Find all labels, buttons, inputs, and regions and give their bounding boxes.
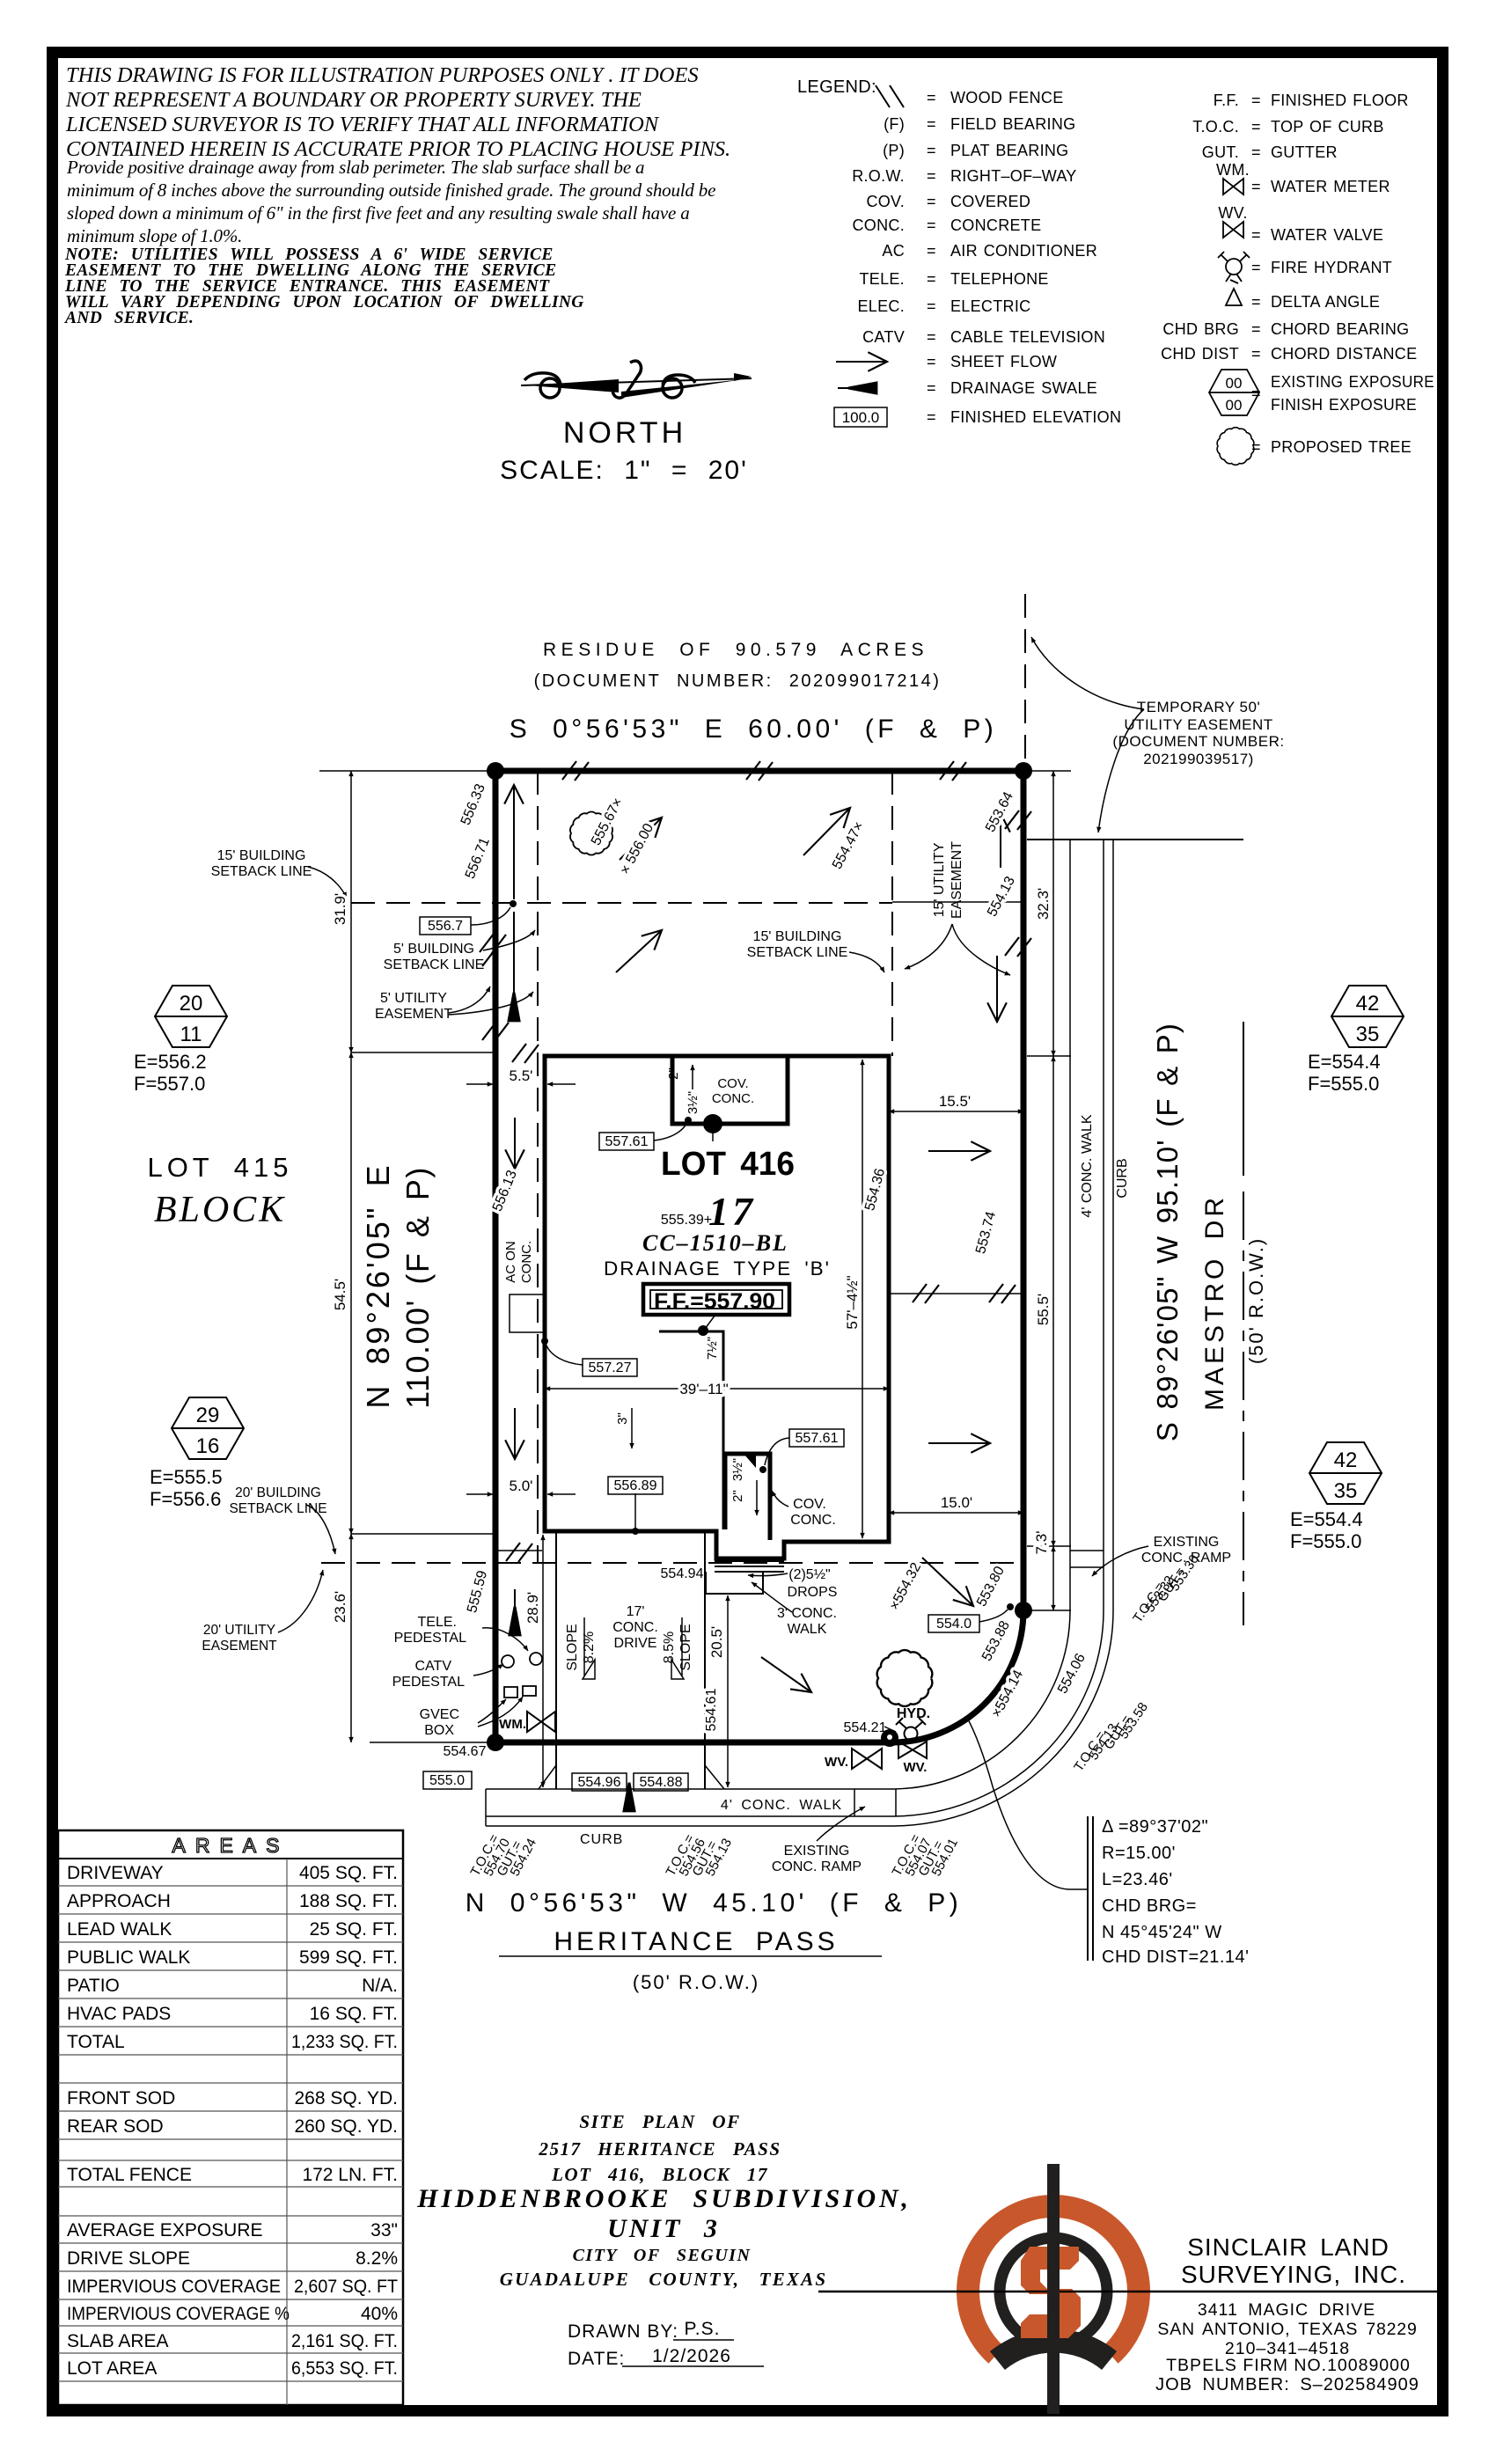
svg-text:SETBACK LINE: SETBACK LINE xyxy=(211,864,312,879)
svg-text:CATV: CATV xyxy=(862,328,905,346)
svg-text:SETBACK LINE: SETBACK LINE xyxy=(384,957,485,972)
svg-text:LOT AREA: LOT AREA xyxy=(67,2358,157,2379)
svg-text:20: 20 xyxy=(180,992,203,1016)
svg-text:× 556.00: × 556.00 xyxy=(618,821,657,876)
svg-text:42: 42 xyxy=(1356,992,1380,1016)
svg-text:S 89°26'05" W 95.10' (F & P): S 89°26'05" W 95.10' (F & P) xyxy=(1151,1023,1184,1441)
svg-text:CURB: CURB xyxy=(1115,1158,1130,1198)
svg-text:LEAD WALK: LEAD WALK xyxy=(67,1919,172,1940)
svg-text:APPROACH: APPROACH xyxy=(67,1891,171,1911)
svg-text:=: = xyxy=(1251,259,1261,276)
svg-text:E=554.4: E=554.4 xyxy=(1290,1508,1363,1530)
svg-text:554.88: 554.88 xyxy=(640,1775,683,1790)
svg-text:CONC.: CONC. xyxy=(853,216,906,234)
svg-text:AC ON: AC ON xyxy=(503,1241,518,1283)
svg-text:20' UTILITY: 20' UTILITY xyxy=(203,1623,275,1638)
svg-text:35: 35 xyxy=(1356,1023,1380,1046)
svg-text:15' BUILDING: 15' BUILDING xyxy=(217,848,306,863)
svg-text:554.21: 554.21 xyxy=(844,1720,887,1735)
svg-text:UNIT 3: UNIT 3 xyxy=(607,2214,720,2243)
svg-text:(50' R.O.W.): (50' R.O.W.) xyxy=(1245,1237,1267,1364)
svg-text:AND SERVICE.: AND SERVICE. xyxy=(63,309,194,327)
svg-text:=: = xyxy=(1251,320,1261,338)
svg-text:F=555.0: F=555.0 xyxy=(1290,1530,1361,1552)
svg-text:FINISHED ELEVATION: FINISHED ELEVATION xyxy=(950,408,1121,426)
svg-text:GUTTER: GUTTER xyxy=(1271,143,1338,161)
svg-text:554.67: 554.67 xyxy=(444,1744,487,1759)
svg-text:=: = xyxy=(927,379,936,397)
svg-text:CONC. RAMP: CONC. RAMP xyxy=(772,1859,862,1874)
svg-text:HYD.: HYD. xyxy=(897,1706,930,1721)
svg-text:RESIDUE OF 90.579 ACRES: RESIDUE OF 90.579 ACRES xyxy=(543,640,928,660)
svg-text:555.59: 555.59 xyxy=(465,1569,490,1615)
svg-text:3' CONC.: 3' CONC. xyxy=(777,1606,837,1621)
svg-text:CC–1510–BL: CC–1510–BL xyxy=(642,1230,788,1256)
svg-text:N/A.: N/A. xyxy=(362,1976,398,1996)
svg-text:29: 29 xyxy=(196,1404,220,1427)
svg-text:=: = xyxy=(1251,345,1261,363)
svg-text:AREAS: AREAS xyxy=(172,1834,290,1857)
svg-text:=: = xyxy=(1251,178,1261,195)
svg-text:Provide positive drainage away: Provide positive drainage away from slab… xyxy=(66,157,644,178)
svg-text:NOT REPRESENT A BOUNDARY OR PR: NOT REPRESENT A BOUNDARY OR PROPERTY SUR… xyxy=(65,88,642,112)
svg-text:55.5': 55.5' xyxy=(1035,1294,1052,1325)
svg-text:554.06: 554.06 xyxy=(1055,1651,1089,1696)
svg-text:553.88: 553.88 xyxy=(979,1618,1013,1663)
svg-text:HIDDENBROOKE SUBDIVISION,: HIDDENBROOKE SUBDIVISION, xyxy=(416,2184,911,2213)
svg-text:SCALE: 1" = 20': SCALE: 1" = 20' xyxy=(500,456,748,485)
svg-text:minimum slope of 1.0%.: minimum slope of 1.0%. xyxy=(67,225,242,246)
svg-text:15' BUILDING: 15' BUILDING xyxy=(753,929,842,944)
svg-text:SAN ANTONIO, TEXAS 78229: SAN ANTONIO, TEXAS 78229 xyxy=(1157,2320,1417,2339)
svg-text:WALK: WALK xyxy=(788,1622,827,1637)
svg-text:minimum of 8 inches above the: minimum of 8 inches above the surroundin… xyxy=(67,180,715,201)
svg-text:CHORD DISTANCE: CHORD DISTANCE xyxy=(1271,345,1417,363)
svg-text:F=557.0: F=557.0 xyxy=(134,1073,205,1095)
svg-text:CONC.: CONC. xyxy=(612,1620,658,1635)
svg-text:=: = xyxy=(1251,92,1261,109)
svg-text:555.39+: 555.39+ xyxy=(661,1213,712,1228)
svg-text:557.27: 557.27 xyxy=(589,1360,632,1375)
svg-text:=: = xyxy=(927,242,936,260)
svg-text:=: = xyxy=(927,328,936,346)
svg-text:7.3': 7.3' xyxy=(1033,1531,1050,1555)
svg-text:JOB NUMBER: S–202584909: JOB NUMBER: S–202584909 xyxy=(1155,2375,1419,2394)
svg-text:R=15.00': R=15.00' xyxy=(1102,1844,1176,1863)
svg-text:DRAINAGE TYPE 'B': DRAINAGE TYPE 'B' xyxy=(604,1258,831,1280)
svg-text:CHD DIST: CHD DIST xyxy=(1161,345,1239,363)
svg-text:=: = xyxy=(927,115,936,133)
svg-text:2": 2" xyxy=(730,1490,745,1502)
svg-text:EASEMENT: EASEMENT xyxy=(950,841,964,919)
svg-text:25 SQ. FT.: 25 SQ. FT. xyxy=(310,1919,398,1940)
svg-text:DRIVEWAY: DRIVEWAY xyxy=(67,1863,164,1883)
svg-text:17': 17' xyxy=(627,1604,645,1619)
svg-text:WV.: WV. xyxy=(825,1755,848,1770)
svg-text:8.5%: 8.5% xyxy=(662,1632,677,1663)
svg-text:40%: 40% xyxy=(361,2304,398,2324)
svg-text:11: 11 xyxy=(180,1023,202,1046)
svg-text:L=23.46': L=23.46' xyxy=(1102,1870,1173,1889)
svg-text:TEMPORARY 50': TEMPORARY 50' xyxy=(1137,699,1260,715)
svg-text:556.33: 556.33 xyxy=(458,781,488,827)
svg-text:20' BUILDING: 20' BUILDING xyxy=(235,1485,321,1500)
svg-text:EASEMENT: EASEMENT xyxy=(375,1007,452,1022)
svg-text:COV.: COV. xyxy=(717,1076,748,1091)
svg-text:CITY OF SEGUIN: CITY OF SEGUIN xyxy=(573,2246,752,2265)
svg-text:DRIVE SLOPE: DRIVE SLOPE xyxy=(67,2248,190,2269)
svg-text:CONCRETE: CONCRETE xyxy=(950,216,1041,234)
svg-text:sloped down a minimum of 6" in: sloped down a minimum of 6" in the first… xyxy=(67,202,690,224)
svg-text:TELE.: TELE. xyxy=(859,270,905,288)
svg-text:CATV: CATV xyxy=(415,1659,452,1674)
svg-text:100.0: 100.0 xyxy=(842,409,880,426)
svg-text:P.S.: P.S. xyxy=(685,2319,721,2339)
svg-text:WV.: WV. xyxy=(1218,204,1247,222)
svg-text:557.61: 557.61 xyxy=(605,1134,649,1149)
svg-text:CONC.: CONC. xyxy=(519,1241,534,1283)
svg-text:SLAB AREA: SLAB AREA xyxy=(67,2331,169,2351)
svg-text:N 45°45'24" W: N 45°45'24" W xyxy=(1102,1923,1222,1942)
svg-text:188 SQ. FT.: 188 SQ. FT. xyxy=(299,1891,398,1911)
svg-text:SLOPE: SLOPE xyxy=(678,1624,693,1670)
svg-text:FIRE HYDRANT: FIRE HYDRANT xyxy=(1271,259,1392,276)
svg-text:=: = xyxy=(927,216,936,234)
svg-text:×554.32: ×554.32 xyxy=(887,1560,924,1613)
svg-text:00: 00 xyxy=(1226,397,1243,414)
svg-text:TBPELS FIRM NO.10089000: TBPELS FIRM NO.10089000 xyxy=(1166,2356,1411,2375)
svg-text:17: 17 xyxy=(708,1189,756,1234)
svg-text:54.5': 54.5' xyxy=(332,1279,348,1310)
svg-text:1/2/2026: 1/2/2026 xyxy=(652,2346,731,2366)
svg-text:554.47×: 554.47× xyxy=(830,819,867,871)
svg-text:DRAINAGE SWALE: DRAINAGE SWALE xyxy=(950,379,1097,397)
svg-text:=: = xyxy=(927,193,936,210)
svg-text:260 SQ. YD.: 260 SQ. YD. xyxy=(294,2116,398,2137)
svg-text:DATE:: DATE: xyxy=(568,2349,625,2369)
svg-text:556.71: 556.71 xyxy=(463,835,493,881)
svg-text:553.64: 553.64 xyxy=(983,789,1016,834)
svg-text:F.F.: F.F. xyxy=(1214,92,1239,109)
svg-text:599 SQ. FT.: 599 SQ. FT. xyxy=(299,1947,398,1968)
svg-text:32.3': 32.3' xyxy=(1035,888,1052,920)
svg-text:553.74: 553.74 xyxy=(973,1210,999,1256)
svg-text:CHORD BEARING: CHORD BEARING xyxy=(1271,320,1409,338)
svg-text:WM.: WM. xyxy=(1216,161,1250,179)
svg-text:TELE.: TELE. xyxy=(418,1615,457,1630)
svg-text:=: = xyxy=(1251,143,1261,161)
svg-text:E=554.4: E=554.4 xyxy=(1308,1051,1381,1073)
svg-text:555.0: 555.0 xyxy=(429,1773,465,1788)
svg-text:WATER METER: WATER METER xyxy=(1271,178,1390,195)
svg-text:DRAWN BY:: DRAWN BY: xyxy=(568,2321,678,2342)
svg-text:=: = xyxy=(1251,226,1261,244)
svg-text:ELECTRIC: ELECTRIC xyxy=(950,297,1030,315)
svg-text:15.0': 15.0' xyxy=(941,1494,972,1511)
svg-text:TOP OF CURB: TOP OF CURB xyxy=(1271,118,1384,136)
svg-text:42: 42 xyxy=(1334,1448,1358,1472)
svg-text:MAESTRO DR: MAESTRO DR xyxy=(1200,1194,1229,1411)
svg-text:WV.: WV. xyxy=(904,1760,928,1775)
svg-text:EXISTING: EXISTING xyxy=(1154,1535,1220,1550)
svg-text:SITE PLAN OF: SITE PLAN OF xyxy=(579,2111,740,2132)
svg-text:GUADALUPE COUNTY, TEXAS: GUADALUPE COUNTY, TEXAS xyxy=(500,2269,827,2290)
svg-text:CURB: CURB xyxy=(580,1832,623,1847)
svg-text:CHD DIST=21.14': CHD DIST=21.14' xyxy=(1102,1947,1250,1967)
svg-text:DROPS: DROPS xyxy=(788,1585,838,1600)
svg-text:8.2%: 8.2% xyxy=(582,1632,597,1663)
svg-text:23.6': 23.6' xyxy=(332,1591,348,1623)
svg-text:=: = xyxy=(927,89,936,106)
svg-text:COV.: COV. xyxy=(793,1497,826,1512)
svg-text:F.F.=557.90: F.F.=557.90 xyxy=(654,1289,775,1314)
svg-text:31.9': 31.9' xyxy=(332,893,348,925)
svg-text:16: 16 xyxy=(196,1434,220,1458)
svg-text:3411 MAGIC DRIVE: 3411 MAGIC DRIVE xyxy=(1198,2300,1375,2320)
svg-text:CONC.: CONC. xyxy=(790,1513,836,1528)
svg-text:=: = xyxy=(1251,293,1261,311)
svg-text:F=555.0: F=555.0 xyxy=(1308,1073,1379,1095)
svg-text:8.2%: 8.2% xyxy=(356,2248,398,2269)
svg-text:HVAC PADS: HVAC PADS xyxy=(67,2004,171,2024)
svg-text:FRONT SOD: FRONT SOD xyxy=(67,2088,175,2108)
svg-text:LOT 416: LOT 416 xyxy=(661,1146,795,1183)
svg-text:FIELD BEARING: FIELD BEARING xyxy=(950,115,1075,133)
svg-text:IMPERVIOUS COVERAGE: IMPERVIOUS COVERAGE xyxy=(67,2277,281,2297)
svg-text:268 SQ. YD.: 268 SQ. YD. xyxy=(294,2088,398,2108)
svg-text:WM.: WM. xyxy=(499,1717,526,1732)
svg-text:3": 3" xyxy=(615,1412,630,1425)
svg-text:PATIO: PATIO xyxy=(67,1976,120,1996)
svg-text:LOT 415: LOT 415 xyxy=(147,1152,292,1183)
svg-text:CONC.: CONC. xyxy=(712,1091,754,1106)
svg-text:(2)5½": (2)5½" xyxy=(788,1567,830,1582)
svg-text:TELEPHONE: TELEPHONE xyxy=(950,270,1049,288)
svg-text:=: = xyxy=(927,270,936,288)
svg-text:EXISTING EXPOSURE: EXISTING EXPOSURE xyxy=(1271,373,1434,391)
svg-text:TOTAL FENCE: TOTAL FENCE xyxy=(67,2165,192,2185)
svg-text:PEDESTAL: PEDESTAL xyxy=(392,1675,466,1690)
svg-text:PLAT BEARING: PLAT BEARING xyxy=(950,142,1068,159)
svg-text:16 SQ. FT.: 16 SQ. FT. xyxy=(310,2004,398,2024)
svg-text:2": 2" xyxy=(666,1067,681,1080)
svg-text:REAR SOD: REAR SOD xyxy=(67,2116,164,2137)
svg-text:FINISHED FLOOR: FINISHED FLOOR xyxy=(1271,92,1409,109)
svg-text:E=556.2: E=556.2 xyxy=(134,1051,207,1073)
svg-text:5' UTILITY: 5' UTILITY xyxy=(380,991,447,1006)
svg-text:20.5': 20.5' xyxy=(708,1626,725,1658)
svg-text:LOT 416, BLOCK 17: LOT 416, BLOCK 17 xyxy=(551,2164,768,2185)
svg-text:2,161 SQ. FT.: 2,161 SQ. FT. xyxy=(291,2331,398,2351)
svg-text:202199039517): 202199039517) xyxy=(1143,751,1254,767)
svg-text:(DOCUMENT NUMBER: 2020990172: (DOCUMENT NUMBER: 202099017214) xyxy=(534,671,942,691)
svg-text:GVEC: GVEC xyxy=(420,1707,459,1722)
svg-text:AIR CONDITIONER: AIR CONDITIONER xyxy=(950,242,1097,260)
svg-text:GUT.: GUT. xyxy=(1202,143,1239,161)
svg-text:PUBLIC WALK: PUBLIC WALK xyxy=(67,1947,190,1968)
svg-text:CABLE TELEVISION: CABLE TELEVISION xyxy=(950,328,1105,346)
svg-text:110.00' (F & P): 110.00' (F & P) xyxy=(400,1166,436,1409)
svg-text:THIS DRAWING IS FOR ILLUSTRATI: THIS DRAWING IS FOR ILLUSTRATION PURPOSE… xyxy=(66,63,699,87)
svg-text:S 0°56'53" E 60.00' (F &: S 0°56'53" E 60.00' (F & P) xyxy=(510,715,997,744)
svg-text:PROPOSED TREE: PROPOSED TREE xyxy=(1271,438,1412,456)
svg-text:EXISTING: EXISTING xyxy=(784,1844,850,1859)
svg-text:SURVEYING, INC.: SURVEYING, INC. xyxy=(1181,2261,1406,2288)
svg-text:EASEMENT: EASEMENT xyxy=(202,1639,277,1654)
svg-text:3½": 3½" xyxy=(686,1091,700,1114)
svg-text:R.O.W.: R.O.W. xyxy=(852,167,905,185)
svg-text:NORTH: NORTH xyxy=(563,416,686,450)
svg-text:AVERAGE EXPOSURE: AVERAGE EXPOSURE xyxy=(67,2220,263,2240)
svg-text:ELEC.: ELEC. xyxy=(857,297,905,315)
svg-text:SETBACK LINE: SETBACK LINE xyxy=(229,1501,326,1516)
svg-text:COV.: COV. xyxy=(866,193,905,210)
svg-text:=: = xyxy=(927,142,936,159)
svg-text:(DOCUMENT NUMBER:: (DOCUMENT NUMBER: xyxy=(1112,733,1284,750)
svg-text:UTILITY EASEMENT: UTILITY EASEMENT xyxy=(1124,716,1272,733)
svg-text:DRIVE: DRIVE xyxy=(614,1636,657,1651)
svg-text:DELTA ANGLE: DELTA ANGLE xyxy=(1271,293,1380,311)
svg-text:554.61: 554.61 xyxy=(704,1688,719,1731)
svg-text:57'–4½": 57'–4½" xyxy=(844,1275,861,1329)
svg-text:BOX: BOX xyxy=(424,1723,454,1738)
svg-text:4' CONC. WALK: 4' CONC. WALK xyxy=(1080,1114,1095,1217)
svg-text:PEDESTAL: PEDESTAL xyxy=(394,1631,467,1646)
svg-text:39'–11": 39'–11" xyxy=(679,1381,728,1397)
svg-text:172 LN. FT.: 172 LN. FT. xyxy=(302,2165,398,2185)
svg-text:=: = xyxy=(927,408,936,426)
svg-text:=: = xyxy=(927,167,936,185)
svg-text:N 0°56'53" W 45.10' (F &: N 0°56'53" W 45.10' (F & P) xyxy=(466,1888,962,1918)
svg-text:WATER VALVE: WATER VALVE xyxy=(1271,226,1383,244)
svg-text:LEGEND:: LEGEND: xyxy=(797,77,876,97)
svg-text:=: = xyxy=(927,297,936,315)
svg-text:5' BUILDING: 5' BUILDING xyxy=(393,942,474,957)
svg-text:554.13: 554.13 xyxy=(985,874,1018,919)
svg-text:6,553 SQ. FT.: 6,553 SQ. FT. xyxy=(291,2358,398,2379)
svg-text:405 SQ. FT.: 405 SQ. FT. xyxy=(299,1863,398,1883)
svg-text:7½": 7½" xyxy=(705,1337,720,1360)
svg-text:FINISH EXPOSURE: FINISH EXPOSURE xyxy=(1271,396,1417,414)
svg-text:554.96: 554.96 xyxy=(578,1775,621,1790)
svg-text:557.61: 557.61 xyxy=(796,1431,839,1446)
svg-text:554.0: 554.0 xyxy=(936,1617,972,1632)
svg-text:(P): (P) xyxy=(883,142,905,159)
svg-text:Δ =89°37'02": Δ =89°37'02" xyxy=(1102,1817,1208,1837)
svg-text:554.94: 554.94 xyxy=(661,1566,704,1581)
svg-text:=: = xyxy=(927,353,936,370)
svg-text:=: = xyxy=(1251,118,1261,136)
svg-text:5.5': 5.5' xyxy=(510,1067,533,1084)
svg-text:SINCLAIR LAND: SINCLAIR LAND xyxy=(1187,2233,1390,2261)
svg-text:LICENSED SURVEYOR IS TO VERIFY: LICENSED SURVEYOR IS TO VERIFY THAT ALL … xyxy=(65,113,660,136)
svg-text:00: 00 xyxy=(1226,375,1243,392)
svg-text:RIGHT–OF–WAY: RIGHT–OF–WAY xyxy=(950,167,1077,185)
svg-text:(F): (F) xyxy=(884,115,905,133)
svg-text:CHD BRG=: CHD BRG= xyxy=(1102,1896,1197,1916)
svg-text:IMPERVIOUS COVERAGE %: IMPERVIOUS COVERAGE % xyxy=(67,2304,290,2324)
svg-text:SETBACK LINE: SETBACK LINE xyxy=(747,945,848,960)
svg-text:556.89: 556.89 xyxy=(614,1478,657,1493)
svg-text:1,233 SQ. FT.: 1,233 SQ. FT. xyxy=(291,2032,398,2052)
svg-text:BLOCK: BLOCK xyxy=(154,1190,286,1230)
svg-text:28.9': 28.9' xyxy=(524,1592,541,1624)
svg-text:WOOD FENCE: WOOD FENCE xyxy=(950,89,1064,106)
svg-text:HERITANCE PASS: HERITANCE PASS xyxy=(554,1927,838,1956)
svg-text:F=556.6: F=556.6 xyxy=(150,1488,221,1510)
svg-text:CHD BRG: CHD BRG xyxy=(1162,320,1239,338)
svg-text:554.36: 554.36 xyxy=(862,1167,888,1213)
svg-text:555.67×: 555.67× xyxy=(589,796,626,847)
svg-text:556.7: 556.7 xyxy=(428,919,463,934)
svg-text:TOTAL: TOTAL xyxy=(67,2032,125,2052)
svg-text:33": 33" xyxy=(370,2220,398,2240)
svg-text:5.0': 5.0' xyxy=(510,1478,533,1494)
svg-text:N 89°26'05" E: N 89°26'05" E xyxy=(360,1162,396,1408)
svg-text:SLOPE: SLOPE xyxy=(565,1624,580,1670)
svg-text:SHEET FLOW: SHEET FLOW xyxy=(950,353,1057,370)
svg-text:4' CONC. WALK: 4' CONC. WALK xyxy=(721,1798,842,1813)
svg-text:2517 HERITANCE PASS: 2517 HERITANCE PASS xyxy=(538,2138,781,2160)
svg-text:E=555.5: E=555.5 xyxy=(150,1466,223,1488)
svg-text:553.80: 553.80 xyxy=(974,1564,1008,1609)
svg-text:2,607 SQ. FT: 2,607 SQ. FT xyxy=(294,2277,398,2297)
svg-text:15' UTILITY: 15' UTILITY xyxy=(932,842,947,917)
svg-text:35: 35 xyxy=(1334,1479,1358,1503)
svg-text:COVERED: COVERED xyxy=(950,193,1030,210)
svg-text:T.O.C.: T.O.C. xyxy=(1192,118,1239,136)
svg-text:15.5': 15.5' xyxy=(939,1093,971,1110)
svg-text:3½": 3½" xyxy=(730,1458,745,1481)
svg-text:AC: AC xyxy=(882,242,905,260)
svg-text:(50' R.O.W.): (50' R.O.W.) xyxy=(633,1971,759,1993)
